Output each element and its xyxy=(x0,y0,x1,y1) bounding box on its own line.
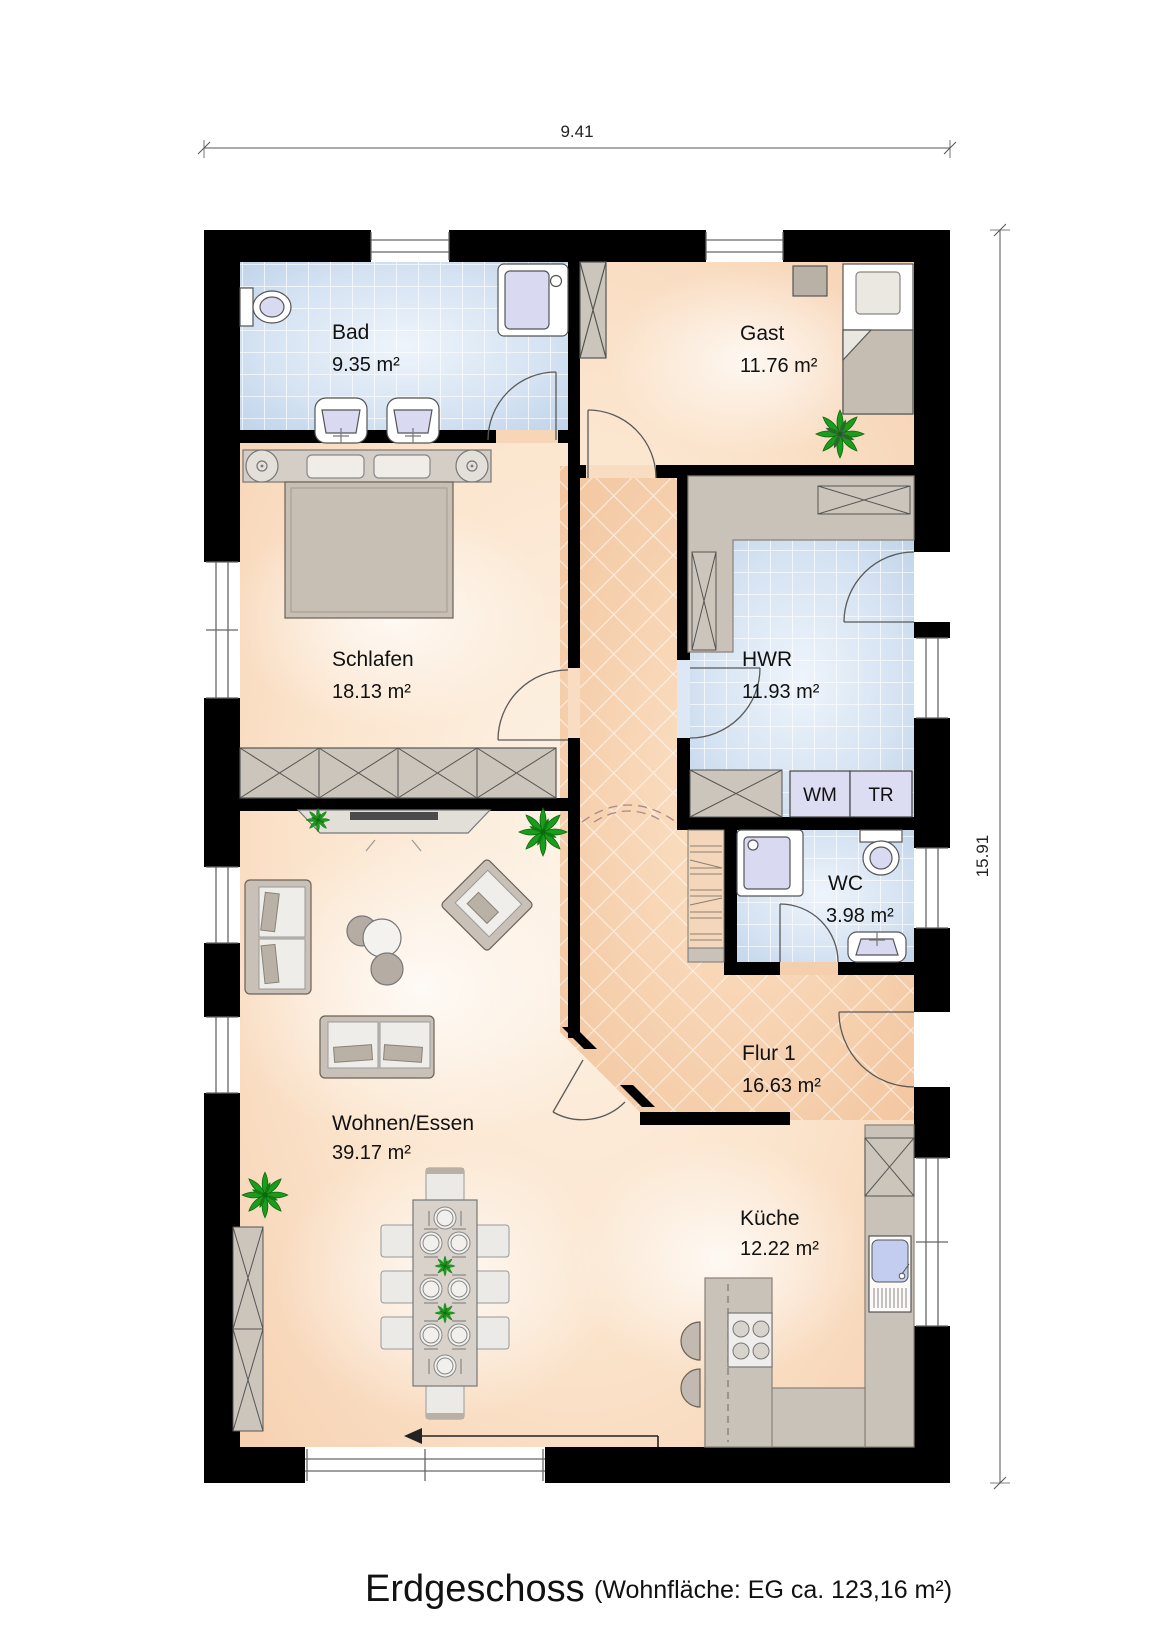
room-name: WC xyxy=(828,872,863,895)
wall-hall-east-lower xyxy=(677,738,690,817)
room-area: 11.93 m² xyxy=(742,681,820,703)
floor-title: Erdgeschoss xyxy=(365,1568,585,1610)
dining-chair xyxy=(381,1271,415,1303)
dryer-label: TR xyxy=(868,785,893,806)
wardrobe-icon xyxy=(580,262,606,358)
washing-machine-icon: WM xyxy=(790,771,850,817)
shower-icon xyxy=(498,264,568,336)
dining-chair xyxy=(475,1271,509,1303)
wall-hall-west-upper xyxy=(568,443,580,668)
wall-kueche-north xyxy=(640,1112,790,1125)
room-area: 11.76 m² xyxy=(740,355,818,377)
room-name: Wohnen/Essen xyxy=(332,1112,474,1135)
tv-icon xyxy=(350,812,438,820)
room-area: 16.63 m² xyxy=(742,1075,821,1097)
room-area: 3.98 m² xyxy=(826,905,894,927)
dining-chair xyxy=(475,1225,509,1257)
stove-icon xyxy=(728,1313,772,1367)
window-gast-north xyxy=(706,230,783,262)
toilet-icon xyxy=(860,830,902,875)
shower-icon xyxy=(737,830,803,896)
room-area: 12.22 m² xyxy=(740,1238,819,1260)
bath-sink-icon xyxy=(315,398,367,443)
kitchen-peninsula xyxy=(705,1278,772,1447)
wall-hall-west-lower xyxy=(568,738,580,1038)
plan-title: Erdgeschoss (Wohnfläche: EG ca. 123,16 m… xyxy=(365,1568,952,1610)
opening-bad xyxy=(496,430,558,443)
dining-chair xyxy=(475,1317,509,1349)
opening-schlafen xyxy=(568,668,580,738)
bath-sink-icon xyxy=(387,398,439,443)
nightstand-icon xyxy=(793,266,827,296)
door-opening-hwr-east xyxy=(914,552,950,622)
dimension-right: 15.91 xyxy=(973,224,1010,1489)
sideboard-icon xyxy=(233,1227,263,1431)
floor-plan-drawing: WM TR xyxy=(0,0,1160,1640)
room-area: 9.35 m² xyxy=(332,354,400,376)
window-bad-north xyxy=(371,230,449,262)
sofa-three-seat-icon xyxy=(320,1016,434,1078)
plant-icon xyxy=(816,410,864,458)
opening-gast xyxy=(586,465,656,478)
room-area: 18.13 m² xyxy=(332,681,411,703)
washing-machine-label: WM xyxy=(803,785,837,806)
plant-icon xyxy=(306,808,330,832)
room-name: Flur 1 xyxy=(742,1042,796,1065)
wardrobe-row-icon xyxy=(240,748,556,798)
dining-chair xyxy=(381,1317,415,1349)
dimension-width-label: 9.41 xyxy=(560,122,593,141)
single-bed-icon xyxy=(843,264,913,414)
plant-icon xyxy=(435,1303,455,1323)
plant-icon xyxy=(519,808,567,856)
dimension-height-label: 15.91 xyxy=(973,835,992,878)
kitchen-sink-icon xyxy=(869,1236,911,1312)
opening-hwr xyxy=(677,660,690,738)
window-hwr-east xyxy=(914,638,950,718)
wc-sink-icon xyxy=(848,932,906,962)
window-wc-east xyxy=(914,848,950,928)
room-name: HWR xyxy=(742,648,792,671)
window-terrace-south xyxy=(305,1447,545,1483)
door-opening-entrance-east xyxy=(914,1012,950,1087)
room-name: Gast xyxy=(740,322,785,345)
coat-closet-icon xyxy=(688,830,724,962)
wall-bad-south-left xyxy=(240,430,496,443)
wall-hwr-south xyxy=(677,817,914,830)
wall-north xyxy=(204,230,950,262)
wall-wc-south-right xyxy=(838,962,914,975)
dryer-icon: TR xyxy=(850,771,912,817)
floor-plan-page: WM TR xyxy=(0,0,1160,1640)
dining-chair xyxy=(381,1225,415,1257)
room-name: Küche xyxy=(740,1207,800,1230)
toilet-icon xyxy=(240,288,291,326)
dimension-top: 9.41 xyxy=(198,122,956,158)
window-wohnen-west-2 xyxy=(204,1017,240,1093)
wall-bad-south-right xyxy=(558,430,568,443)
plant-icon xyxy=(242,1172,288,1218)
opening-wc xyxy=(780,962,838,975)
cabinet-icon xyxy=(865,1138,914,1196)
cabinet-icon xyxy=(692,552,716,650)
plant-icon xyxy=(435,1256,455,1276)
sofa-two-seat-icon xyxy=(245,880,311,994)
wall-schlafen-south xyxy=(204,798,568,811)
wall-wc-south-left xyxy=(724,962,780,975)
wall-bad-gast xyxy=(568,262,580,465)
room-name: Schlafen xyxy=(332,648,414,671)
window-schlafen-west xyxy=(204,562,240,698)
cabinet-icon xyxy=(818,486,910,514)
room-name: Bad xyxy=(332,321,369,344)
room-area: 39.17 m² xyxy=(332,1142,411,1164)
floor-area-note: (Wohnfläche: EG ca. 123,16 m²) xyxy=(594,1576,952,1604)
wall-wc-west xyxy=(724,830,737,962)
cabinet-icon xyxy=(690,770,782,817)
window-wohnen-west-1 xyxy=(204,867,240,943)
window-kueche-east xyxy=(914,1158,950,1326)
